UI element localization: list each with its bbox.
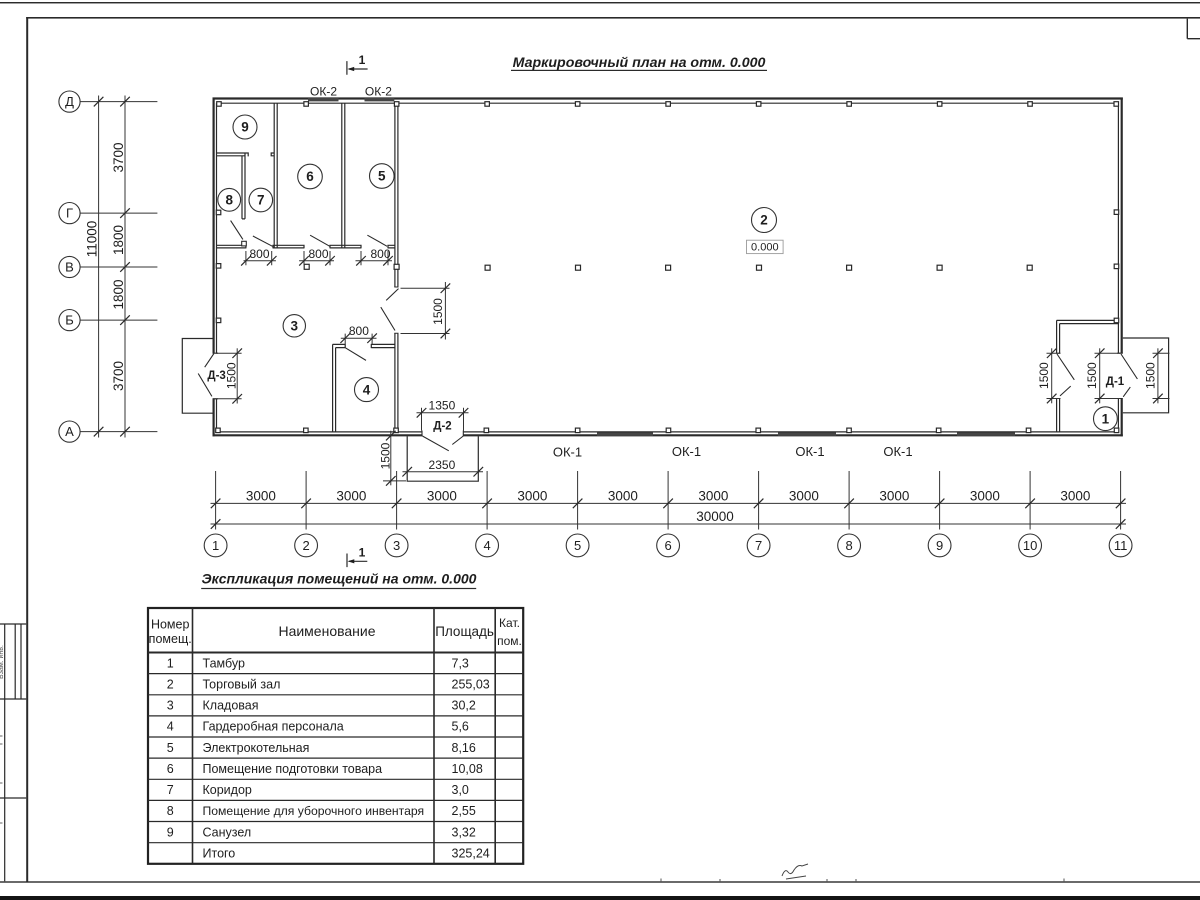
svg-text:3700: 3700 xyxy=(111,361,126,391)
svg-text:2: 2 xyxy=(302,538,309,553)
svg-text:8: 8 xyxy=(225,193,233,208)
svg-text:2: 2 xyxy=(760,213,768,228)
svg-text:Помещение для уборочного инвен: Помещение для уборочного инвентаря xyxy=(203,804,425,818)
svg-text:В: В xyxy=(65,260,74,275)
svg-text:10: 10 xyxy=(1023,538,1037,553)
svg-text:2,55: 2,55 xyxy=(452,804,476,818)
svg-text:3000: 3000 xyxy=(1060,489,1090,504)
svg-text:Д-3: Д-3 xyxy=(207,370,225,382)
svg-text:3000: 3000 xyxy=(336,489,366,504)
svg-text:30,2: 30,2 xyxy=(452,699,476,713)
svg-text:4: 4 xyxy=(483,538,490,553)
svg-text:1350: 1350 xyxy=(429,399,456,413)
svg-text:помещ.: помещ. xyxy=(149,632,192,646)
svg-text:А: А xyxy=(65,424,74,439)
svg-text:1500: 1500 xyxy=(378,442,392,469)
svg-text:1500: 1500 xyxy=(224,362,238,389)
svg-text:800: 800 xyxy=(249,247,269,261)
svg-text:1500: 1500 xyxy=(1037,362,1051,389)
svg-text:Торговый зал: Торговый зал xyxy=(203,677,281,691)
svg-text:800: 800 xyxy=(370,247,390,261)
svg-text:10,08: 10,08 xyxy=(452,762,483,776)
svg-text:3000: 3000 xyxy=(879,489,909,504)
svg-text:ОК-1: ОК-1 xyxy=(553,444,582,459)
svg-text:3: 3 xyxy=(167,699,174,713)
svg-text:Гардеробная персонала: Гардеробная персонала xyxy=(203,720,344,734)
svg-text:Площадь: Площадь xyxy=(435,624,494,639)
svg-text:4: 4 xyxy=(167,720,174,734)
svg-text:3000: 3000 xyxy=(698,489,728,504)
svg-text:Б: Б xyxy=(65,313,74,328)
svg-text:7: 7 xyxy=(257,193,265,208)
svg-text:325,24: 325,24 xyxy=(452,847,490,861)
svg-text:2350: 2350 xyxy=(429,458,456,472)
svg-text:3000: 3000 xyxy=(427,489,457,504)
svg-text:Маркировочный план на отм. 0.0: Маркировочный план на отм. 0.000 xyxy=(513,55,766,71)
svg-text:3000: 3000 xyxy=(789,489,819,504)
svg-text:3: 3 xyxy=(393,538,400,553)
svg-text:8: 8 xyxy=(845,538,852,553)
svg-text:5: 5 xyxy=(378,169,386,184)
svg-text:Взам. инв.: Взам. инв. xyxy=(0,645,5,679)
svg-text:9: 9 xyxy=(167,825,174,839)
svg-text:пом.: пом. xyxy=(497,634,522,648)
svg-text:7,3: 7,3 xyxy=(452,656,469,670)
svg-text:Коридор: Коридор xyxy=(203,783,252,797)
svg-text:ОК-2: ОК-2 xyxy=(310,84,337,98)
svg-text:800: 800 xyxy=(308,247,328,261)
svg-text:800: 800 xyxy=(349,324,369,338)
svg-text:3000: 3000 xyxy=(608,489,638,504)
svg-text:1800: 1800 xyxy=(111,225,126,255)
svg-text:1800: 1800 xyxy=(111,279,126,309)
svg-text:8: 8 xyxy=(167,804,174,818)
svg-text:6: 6 xyxy=(167,762,174,776)
svg-text:7: 7 xyxy=(167,783,174,797)
svg-text:Наименование: Наименование xyxy=(278,623,375,639)
svg-text:5,6: 5,6 xyxy=(452,720,469,734)
svg-text:3700: 3700 xyxy=(111,142,126,172)
svg-text:Д-2: Д-2 xyxy=(433,421,451,433)
svg-text:3000: 3000 xyxy=(517,489,547,504)
svg-text:3000: 3000 xyxy=(970,489,1000,504)
svg-text:ОК-1: ОК-1 xyxy=(672,444,701,459)
svg-text:1: 1 xyxy=(359,546,366,560)
svg-text:1: 1 xyxy=(212,538,219,553)
svg-text:11000: 11000 xyxy=(84,221,99,258)
svg-text:Экспликация помещений на отм.: Экспликация помещений на отм. 0.000 xyxy=(202,571,477,587)
svg-text:ОК-2: ОК-2 xyxy=(365,84,392,98)
svg-text:1500: 1500 xyxy=(1143,362,1157,389)
svg-text:4: 4 xyxy=(363,382,371,397)
svg-text:1: 1 xyxy=(1102,411,1110,426)
svg-text:Санузел: Санузел xyxy=(203,825,252,839)
svg-text:Д: Д xyxy=(65,94,74,109)
svg-text:6: 6 xyxy=(306,169,314,184)
svg-text:1500: 1500 xyxy=(1085,362,1099,389)
svg-text:9: 9 xyxy=(241,120,249,135)
svg-text:Итого: Итого xyxy=(203,847,236,861)
svg-text:Кладовая: Кладовая xyxy=(203,699,259,713)
svg-text:1500: 1500 xyxy=(431,298,445,325)
svg-text:3,0: 3,0 xyxy=(452,783,469,797)
svg-text:Д-1: Д-1 xyxy=(1106,376,1125,388)
svg-text:1: 1 xyxy=(359,53,366,67)
svg-text:1: 1 xyxy=(167,656,174,670)
svg-text:Кат.: Кат. xyxy=(499,616,520,630)
svg-text:Тамбур: Тамбур xyxy=(203,656,245,670)
svg-text:Электрокотельная: Электрокотельная xyxy=(203,741,310,755)
svg-text:6: 6 xyxy=(664,538,671,553)
svg-text:7: 7 xyxy=(755,538,762,553)
svg-text:9: 9 xyxy=(936,538,943,553)
svg-text:3: 3 xyxy=(291,319,299,334)
svg-text:3000: 3000 xyxy=(246,489,276,504)
svg-text:ОК-1: ОК-1 xyxy=(795,444,824,459)
svg-text:11: 11 xyxy=(1114,538,1128,553)
svg-text:8,16: 8,16 xyxy=(452,741,476,755)
svg-text:5: 5 xyxy=(574,538,581,553)
svg-text:5: 5 xyxy=(167,741,174,755)
svg-text:ОК-1: ОК-1 xyxy=(883,444,912,459)
svg-text:255,03: 255,03 xyxy=(452,677,490,691)
svg-text:Помещение подготовки товара: Помещение подготовки товара xyxy=(203,762,383,776)
svg-text:2: 2 xyxy=(167,677,174,691)
svg-text:0.000: 0.000 xyxy=(751,241,779,253)
svg-text:Номер: Номер xyxy=(151,617,190,631)
svg-text:30000: 30000 xyxy=(696,509,734,524)
svg-text:3,32: 3,32 xyxy=(452,825,476,839)
svg-text:Г: Г xyxy=(66,206,73,221)
